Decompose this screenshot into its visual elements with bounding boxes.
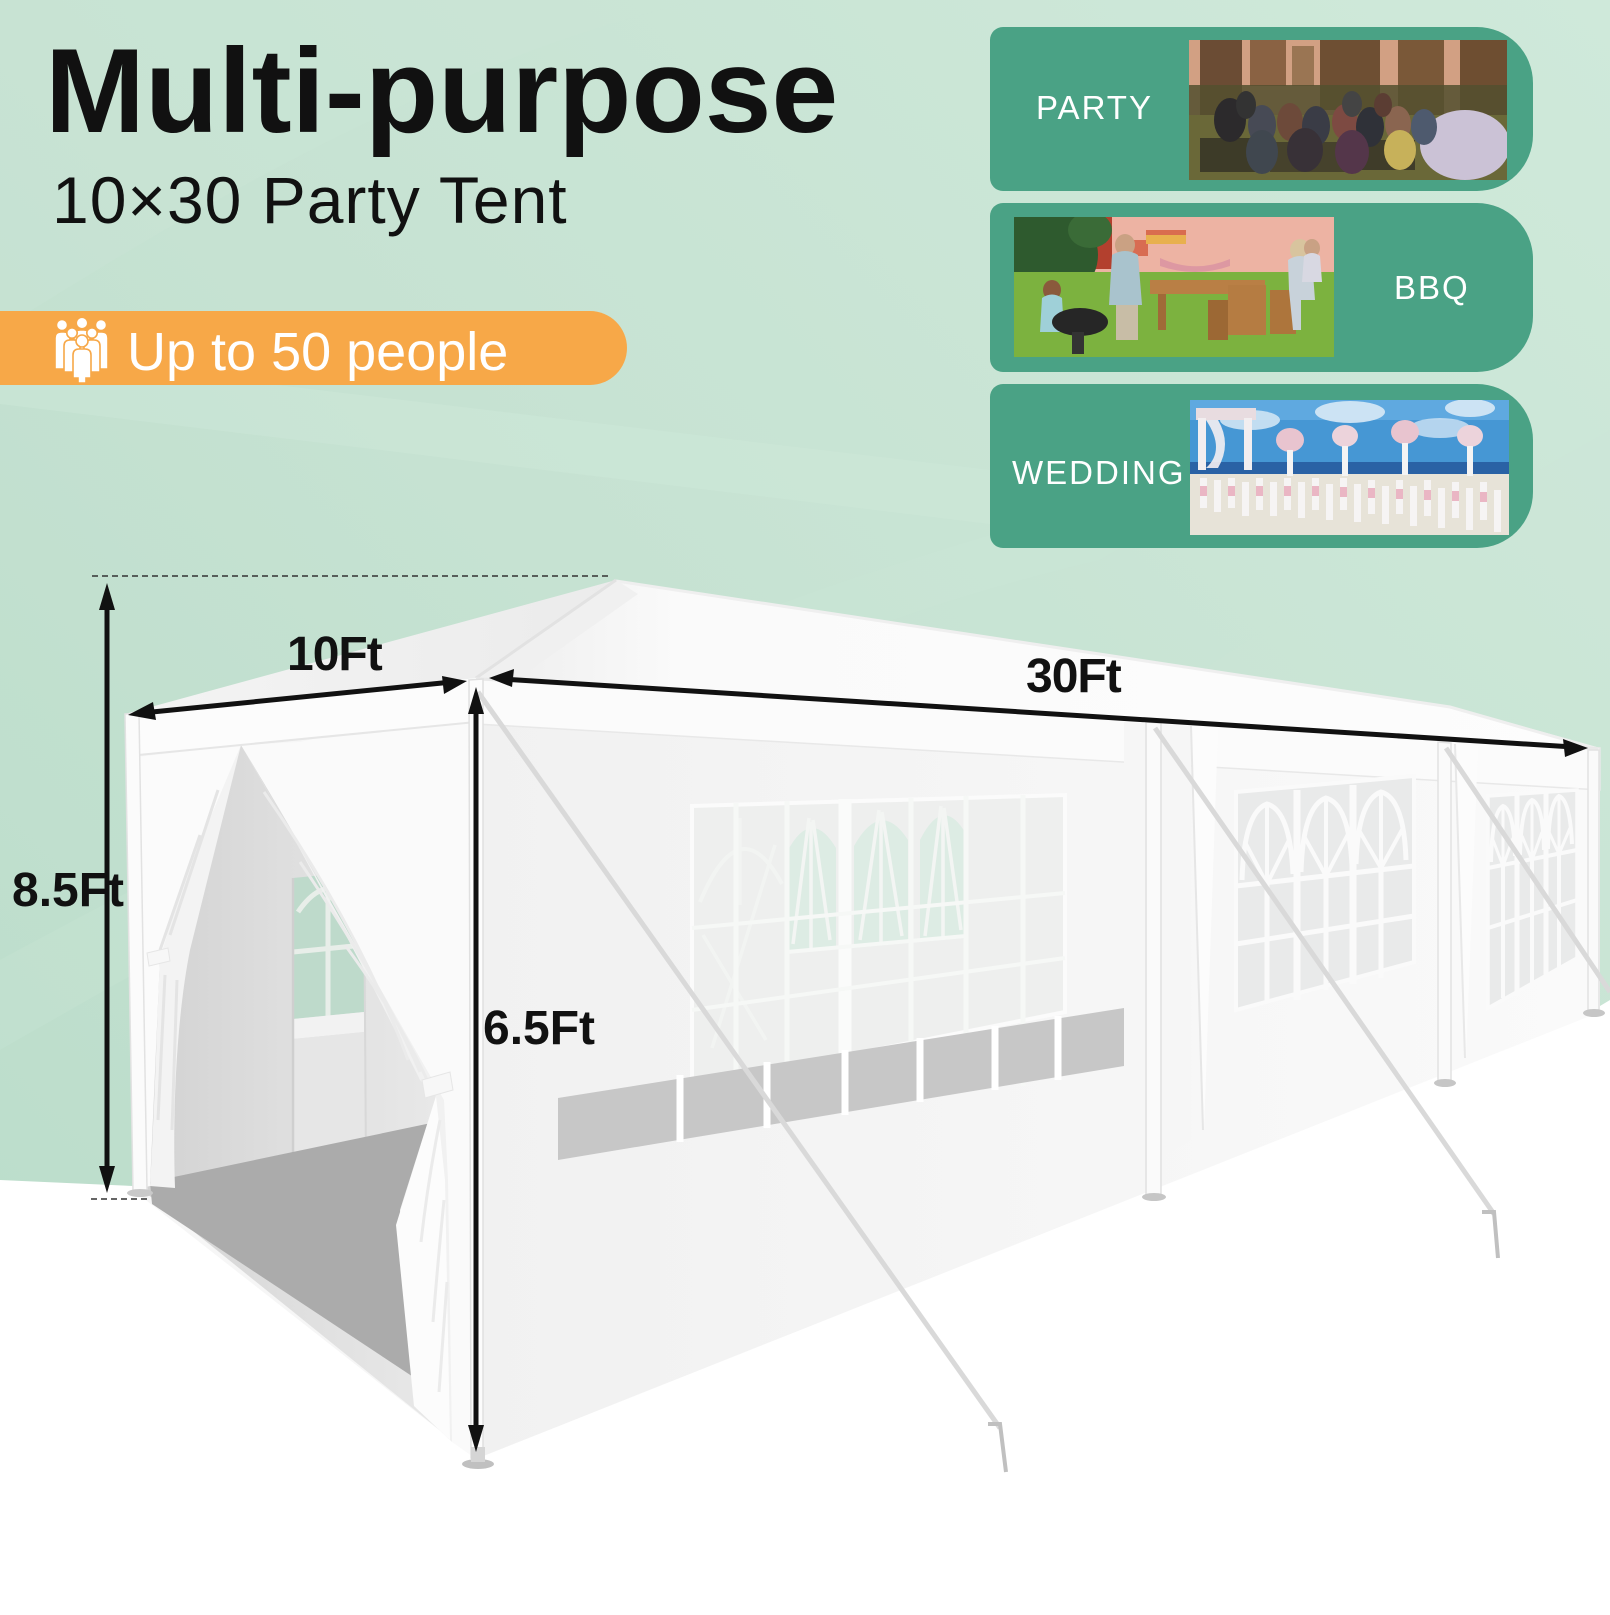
svg-text:10Ft: 10Ft [287, 628, 383, 681]
svg-text:Up to 50 people: Up to 50 people [127, 322, 508, 382]
svg-text:BBQ: BBQ [1394, 269, 1470, 306]
svg-text:10×30 Party Tent: 10×30 Party Tent [52, 163, 568, 237]
svg-text:30Ft: 30Ft [1026, 650, 1122, 703]
svg-text:8.5Ft: 8.5Ft [12, 864, 124, 917]
svg-text:Multi-purpose: Multi-purpose [45, 24, 838, 158]
svg-text:6.5Ft: 6.5Ft [483, 1002, 595, 1055]
svg-text:WEDDING: WEDDING [1012, 454, 1186, 491]
svg-text:PARTY: PARTY [1036, 89, 1153, 126]
